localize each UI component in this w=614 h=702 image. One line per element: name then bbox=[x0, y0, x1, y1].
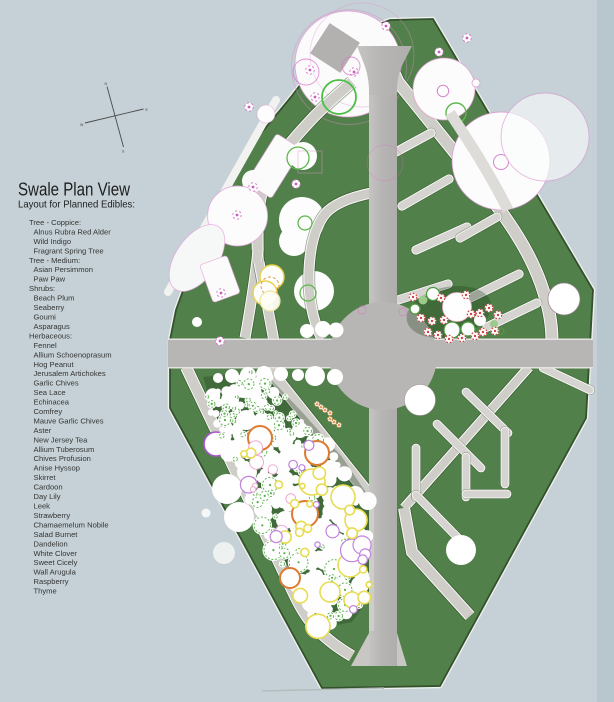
svg-text:Herbaceous:: Herbaceous: bbox=[29, 331, 72, 340]
svg-text:Alnus Rubra Red Alder: Alnus Rubra Red Alder bbox=[34, 227, 112, 236]
svg-text:White Clover: White Clover bbox=[34, 549, 78, 558]
svg-text:Echinacea: Echinacea bbox=[34, 398, 70, 407]
svg-text:Beach Plum: Beach Plum bbox=[34, 294, 75, 303]
svg-text:Allium Schoenoprasum: Allium Schoenoprasum bbox=[34, 350, 112, 359]
svg-text:Dandelion: Dandelion bbox=[34, 539, 68, 548]
svg-text:Raspberry: Raspberry bbox=[34, 577, 69, 586]
svg-text:Jerusalem Artichokes: Jerusalem Artichokes bbox=[34, 369, 106, 378]
svg-text:Chives Profusion: Chives Profusion bbox=[34, 454, 91, 463]
svg-text:Mauve Garlic Chives: Mauve Garlic Chives bbox=[34, 416, 104, 425]
svg-text:Sweet Cicely: Sweet Cicely bbox=[34, 558, 78, 567]
svg-text:Wall Arugula: Wall Arugula bbox=[34, 568, 77, 577]
svg-text:New Jersey Tea: New Jersey Tea bbox=[34, 435, 89, 444]
svg-text:Goumi: Goumi bbox=[34, 313, 57, 322]
svg-text:Leek: Leek bbox=[34, 502, 51, 511]
svg-text:Day Lily: Day Lily bbox=[34, 492, 61, 501]
svg-text:Garlic Chives: Garlic Chives bbox=[34, 379, 79, 388]
svg-text:Skirret: Skirret bbox=[34, 473, 57, 482]
svg-text:Strawberry: Strawberry bbox=[34, 511, 71, 520]
svg-text:Anise Hyssop: Anise Hyssop bbox=[34, 464, 80, 473]
svg-text:Layout for Planned Edibles:: Layout for Planned Edibles: bbox=[18, 200, 135, 211]
svg-text:Tree - Coppice:: Tree - Coppice: bbox=[29, 218, 81, 227]
svg-text:Asparagus: Asparagus bbox=[34, 322, 71, 331]
svg-text:Swale Plan View: Swale Plan View bbox=[18, 179, 130, 200]
svg-text:Cardoon: Cardoon bbox=[34, 483, 63, 492]
svg-text:Hog Peanut: Hog Peanut bbox=[34, 360, 75, 369]
svg-text:Seaberry: Seaberry bbox=[34, 303, 65, 312]
svg-text:Shrubs:: Shrubs: bbox=[29, 284, 55, 293]
svg-text:Salad Burnet: Salad Burnet bbox=[34, 530, 79, 539]
svg-text:Comfrey: Comfrey bbox=[34, 407, 63, 416]
svg-text:Paw Paw: Paw Paw bbox=[34, 275, 66, 284]
svg-text:Tree - Medium:: Tree - Medium: bbox=[29, 256, 80, 265]
svg-text:N: N bbox=[105, 82, 108, 86]
svg-text:Asian Persimmon: Asian Persimmon bbox=[34, 265, 94, 274]
svg-text:W: W bbox=[80, 123, 84, 127]
svg-text:Sea Lace: Sea Lace bbox=[34, 388, 66, 397]
svg-text:Chamaemelum Nobile: Chamaemelum Nobile bbox=[34, 520, 109, 529]
svg-text:Fennel: Fennel bbox=[34, 341, 58, 350]
svg-text:Allium Tuberosum: Allium Tuberosum bbox=[34, 445, 95, 454]
svg-text:Thyme: Thyme bbox=[34, 587, 57, 596]
svg-text:Wild Indigo: Wild Indigo bbox=[34, 237, 72, 246]
svg-text:Aster: Aster bbox=[34, 426, 52, 435]
svg-text:Fragrant Spring Tree: Fragrant Spring Tree bbox=[34, 246, 104, 255]
